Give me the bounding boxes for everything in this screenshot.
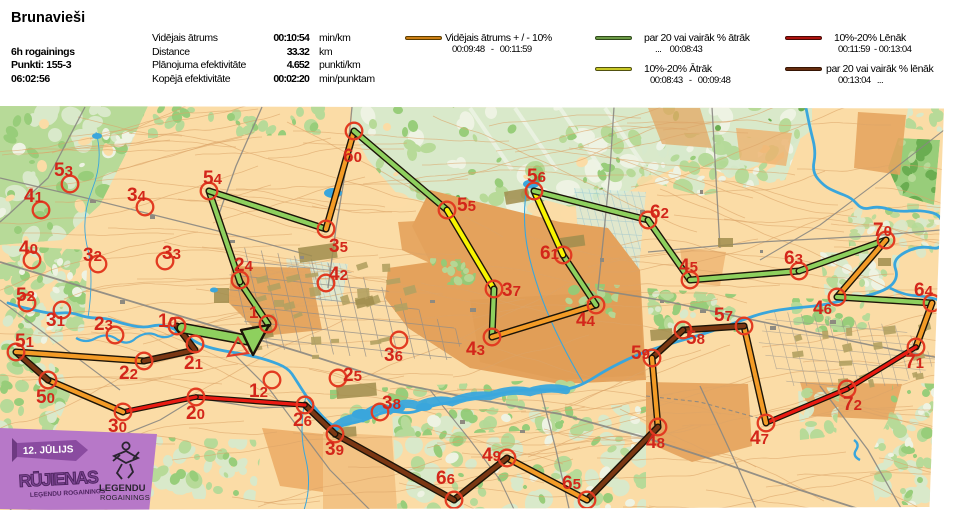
svg-text:54: 54: [203, 168, 223, 189]
svg-text:34: 34: [127, 185, 147, 206]
svg-text:51: 51: [15, 331, 34, 352]
svg-text:46: 46: [813, 298, 832, 319]
svg-text:25: 25: [343, 365, 362, 386]
svg-text:64: 64: [914, 280, 934, 301]
svg-text:60: 60: [343, 146, 362, 167]
svg-text:57: 57: [714, 305, 733, 326]
svg-text:24: 24: [234, 255, 254, 276]
svg-text:56: 56: [527, 166, 546, 187]
svg-text:63: 63: [784, 248, 803, 269]
svg-text:12. JŪLIJS: 12. JŪLIJS: [23, 443, 74, 457]
svg-text:31: 31: [46, 310, 65, 331]
svg-text:58: 58: [686, 328, 705, 349]
svg-text:71: 71: [905, 352, 924, 373]
svg-text:47: 47: [750, 428, 769, 449]
svg-text:65: 65: [562, 473, 581, 494]
svg-text:53: 53: [54, 160, 73, 181]
svg-text:72: 72: [843, 394, 862, 415]
svg-text:33: 33: [162, 243, 181, 264]
svg-text:59: 59: [631, 343, 650, 364]
svg-text:32: 32: [83, 245, 102, 266]
svg-text:20: 20: [186, 403, 205, 424]
svg-text:39: 39: [325, 439, 344, 460]
svg-text:55: 55: [457, 195, 476, 216]
svg-text:49: 49: [482, 445, 501, 466]
svg-text:36: 36: [384, 345, 403, 366]
svg-text:ROGAININGS: ROGAININGS: [100, 493, 150, 502]
svg-text:61: 61: [540, 243, 559, 264]
svg-text:66: 66: [436, 468, 455, 489]
svg-text:26: 26: [293, 410, 312, 431]
svg-text:50: 50: [36, 387, 55, 408]
svg-text:40: 40: [19, 238, 38, 259]
svg-text:48: 48: [646, 432, 665, 453]
svg-text:35: 35: [329, 236, 348, 257]
svg-text:62: 62: [650, 202, 669, 223]
svg-text:43: 43: [466, 339, 485, 360]
svg-text:23: 23: [94, 314, 113, 335]
svg-text:70: 70: [873, 220, 892, 241]
svg-text:12: 12: [249, 381, 268, 402]
svg-text:10: 10: [158, 311, 177, 332]
svg-text:42: 42: [329, 264, 348, 285]
svg-text:RŪJIENAS: RŪJIENAS: [18, 467, 98, 491]
svg-text:45: 45: [679, 256, 698, 277]
svg-text:21: 21: [184, 353, 203, 374]
svg-text:22: 22: [119, 363, 138, 384]
svg-text:52: 52: [16, 285, 35, 306]
svg-text:37: 37: [502, 280, 521, 301]
svg-text:41: 41: [24, 186, 43, 207]
svg-text:38: 38: [382, 393, 401, 414]
svg-text:44: 44: [576, 310, 596, 331]
svg-text:1: 1: [249, 303, 258, 322]
